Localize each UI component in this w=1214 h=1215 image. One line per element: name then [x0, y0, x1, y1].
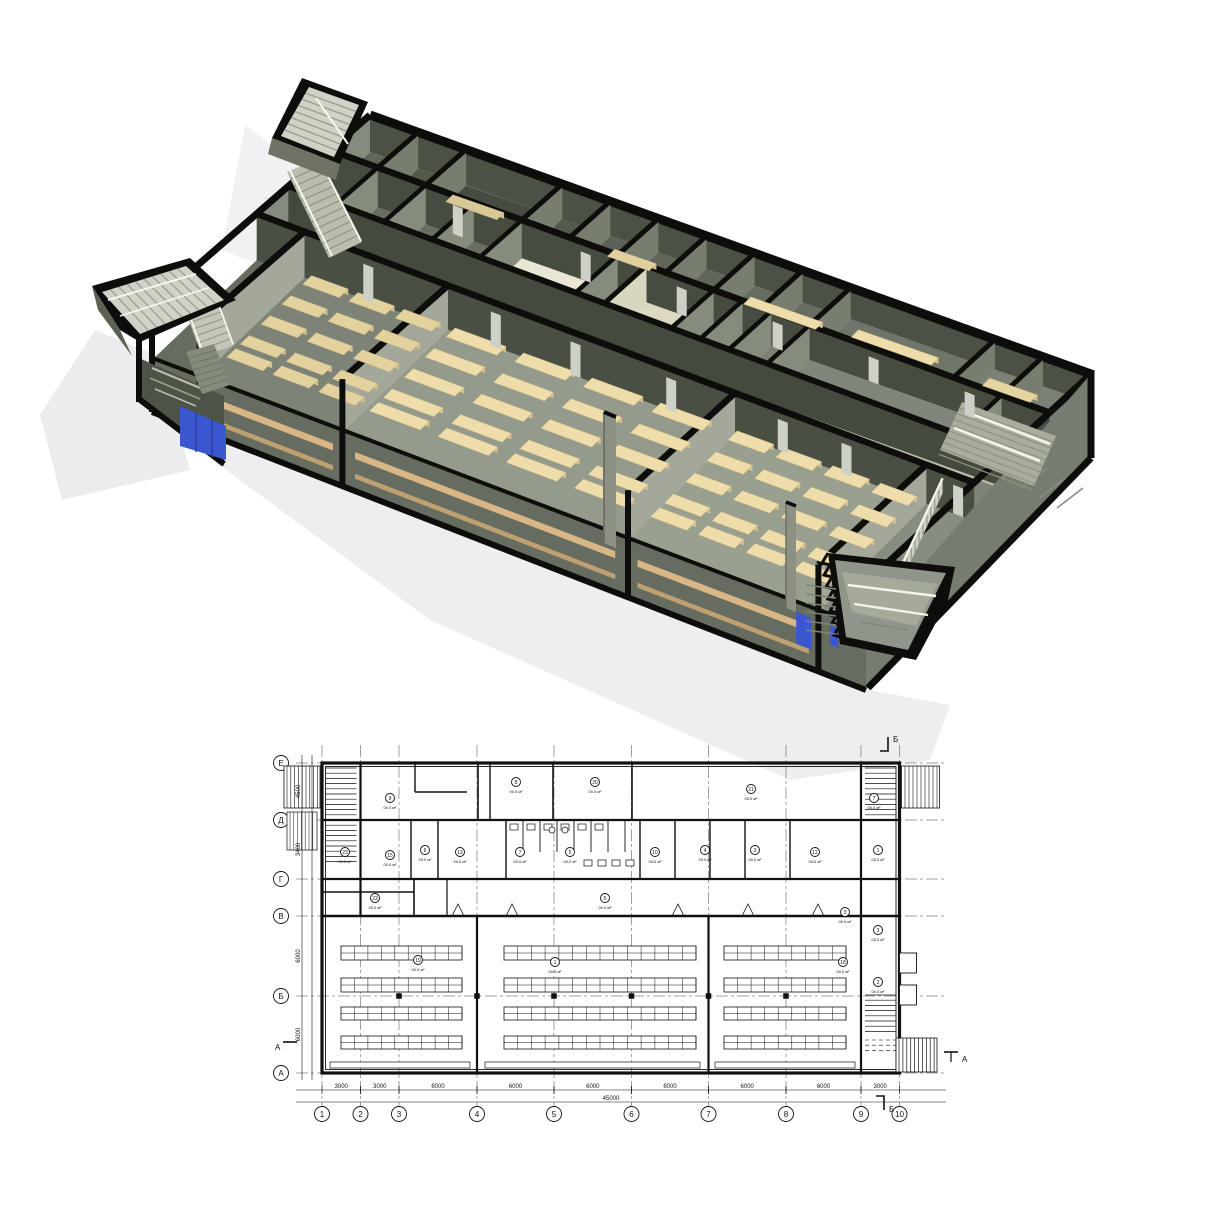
svg-text:00.0 м²: 00.0 м²: [589, 789, 603, 794]
svg-text:Б: Б: [889, 1105, 894, 1114]
svg-text:21: 21: [748, 787, 754, 793]
svg-text:00.0 м²: 00.0 м²: [872, 857, 886, 862]
svg-text:12: 12: [812, 850, 818, 856]
svg-text:00.0 м²: 00.0 м²: [339, 859, 353, 864]
svg-text:00.0 м²: 00.0 м²: [412, 967, 426, 972]
svg-text:00.0 м²: 00.0 м²: [384, 862, 398, 867]
svg-text:10: 10: [895, 1110, 904, 1119]
svg-text:00.0 м²: 00.0 м²: [419, 857, 433, 862]
svg-text:5: 5: [552, 1110, 557, 1119]
svg-text:2: 2: [358, 1110, 363, 1119]
svg-text:6: 6: [629, 1110, 634, 1119]
svg-text:Б: Б: [278, 992, 283, 1001]
svg-text:9: 9: [389, 796, 392, 802]
svg-text:2: 2: [877, 980, 880, 986]
svg-text:6000: 6000: [817, 1084, 831, 1090]
svg-text:1: 1: [554, 960, 557, 966]
svg-text:3: 3: [397, 1110, 402, 1119]
svg-text:6000: 6000: [296, 1027, 302, 1041]
svg-text:3000: 3000: [874, 1084, 888, 1090]
svg-text:00.0 м²: 00.0 м²: [514, 859, 528, 864]
svg-text:Е: Е: [278, 759, 283, 768]
svg-text:8: 8: [515, 780, 518, 786]
svg-text:00.0 м²: 00.0 м²: [749, 857, 763, 862]
svg-text:00.0 м²: 00.0 м²: [745, 796, 759, 801]
svg-text:4: 4: [475, 1110, 480, 1119]
svg-text:Б: Б: [893, 735, 898, 744]
svg-text:20: 20: [592, 780, 598, 786]
svg-text:9: 9: [859, 1110, 864, 1119]
svg-text:7: 7: [873, 796, 876, 802]
svg-text:6000: 6000: [509, 1084, 523, 1090]
svg-text:00.0 м²: 00.0 м²: [868, 805, 882, 810]
svg-text:6000: 6000: [296, 949, 302, 963]
svg-text:1: 1: [320, 1110, 325, 1119]
svg-text:00.0 м²: 00.0 м²: [872, 989, 886, 994]
svg-text:00.0 м²: 00.0 м²: [454, 859, 468, 864]
svg-text:6000: 6000: [663, 1084, 677, 1090]
svg-text:23: 23: [342, 850, 348, 856]
svg-text:6: 6: [424, 848, 427, 854]
svg-text:3000: 3000: [335, 1084, 349, 1090]
svg-text:00.0 м²: 00.0 м²: [809, 859, 823, 864]
svg-text:7: 7: [519, 850, 522, 856]
svg-text:5: 5: [569, 850, 572, 856]
svg-text:6000: 6000: [431, 1084, 445, 1090]
svg-text:Д: Д: [278, 816, 284, 825]
svg-text:00.0 м²: 00.0 м²: [369, 905, 383, 910]
svg-text:13: 13: [457, 850, 463, 856]
svg-text:00.0 м²: 00.0 м²: [510, 789, 524, 794]
svg-text:45000: 45000: [603, 1096, 620, 1102]
svg-text:00.0 м²: 00.0 м²: [549, 969, 563, 974]
svg-text:18: 18: [840, 960, 846, 966]
svg-text:19: 19: [415, 958, 421, 964]
svg-text:3: 3: [754, 848, 757, 854]
svg-text:00.0 м²: 00.0 м²: [599, 905, 613, 910]
svg-text:6000: 6000: [741, 1084, 755, 1090]
svg-text:4: 4: [704, 848, 707, 854]
svg-text:00.0 м²: 00.0 м²: [839, 919, 853, 924]
svg-text:00.0 м²: 00.0 м²: [649, 859, 663, 864]
svg-text:Г: Г: [279, 875, 284, 884]
svg-text:00.0 м²: 00.0 м²: [564, 859, 578, 864]
svg-text:00.0 м²: 00.0 м²: [384, 805, 398, 810]
svg-text:А: А: [275, 1043, 281, 1052]
svg-text:3: 3: [844, 910, 847, 916]
svg-text:В: В: [278, 912, 283, 921]
svg-text:1: 1: [877, 848, 880, 854]
svg-text:8: 8: [784, 1110, 789, 1119]
svg-text:22: 22: [372, 896, 378, 902]
svg-text:3400: 3400: [296, 842, 302, 856]
svg-text:7: 7: [706, 1110, 711, 1119]
svg-text:00.0 м²: 00.0 м²: [837, 969, 851, 974]
svg-text:00.0 м²: 00.0 м²: [872, 937, 886, 942]
svg-text:6000: 6000: [586, 1084, 600, 1090]
svg-text:10: 10: [652, 850, 658, 856]
svg-text:А: А: [278, 1069, 284, 1078]
svg-text:4500: 4500: [296, 784, 302, 798]
svg-text:3000: 3000: [373, 1084, 387, 1090]
svg-text:3: 3: [877, 928, 880, 934]
svg-text:А: А: [962, 1055, 968, 1064]
svg-text:15: 15: [387, 853, 393, 859]
svg-text:5: 5: [604, 896, 607, 902]
svg-text:00.0 м²: 00.0 м²: [699, 857, 713, 862]
